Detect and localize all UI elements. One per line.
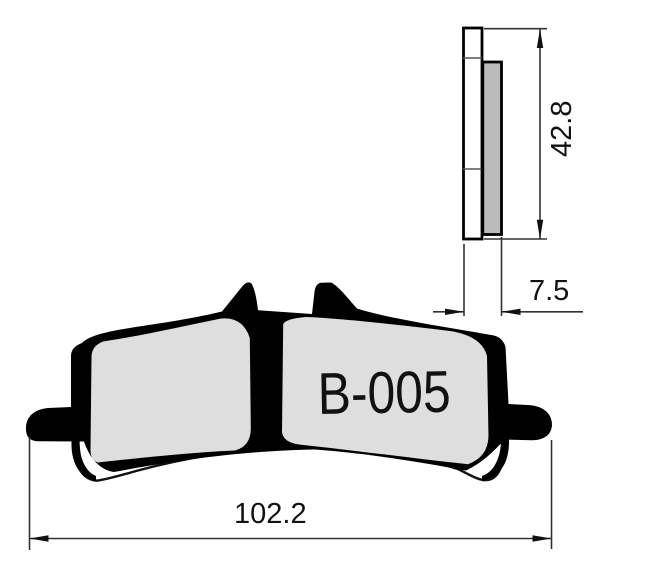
svg-text:102.2: 102.2 — [234, 498, 307, 530]
svg-text:B-005: B-005 — [317, 359, 451, 427]
svg-text:7.5: 7.5 — [529, 275, 569, 307]
svg-text:42.8: 42.8 — [546, 101, 578, 157]
